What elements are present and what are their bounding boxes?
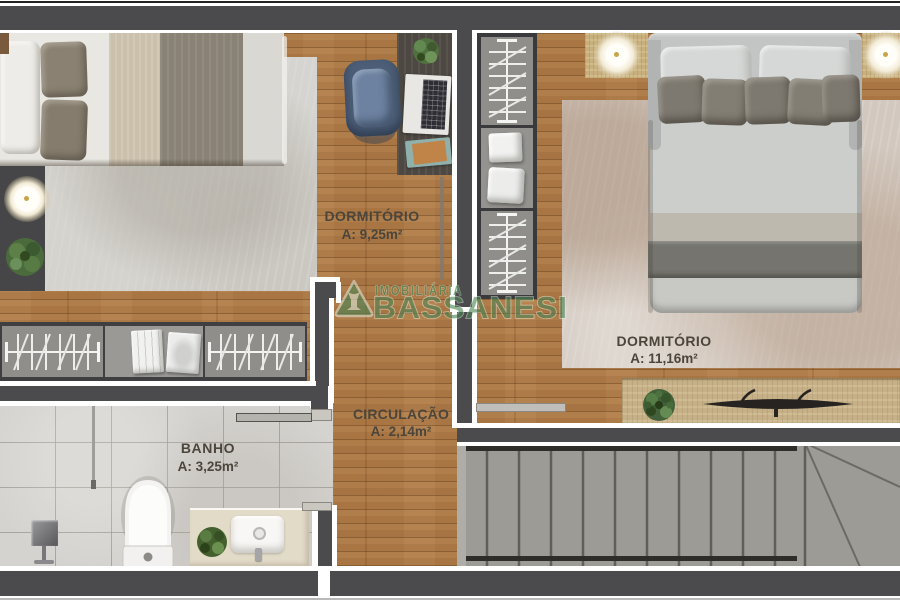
- svg-text:BASSANESI: BASSANESI: [373, 290, 568, 325]
